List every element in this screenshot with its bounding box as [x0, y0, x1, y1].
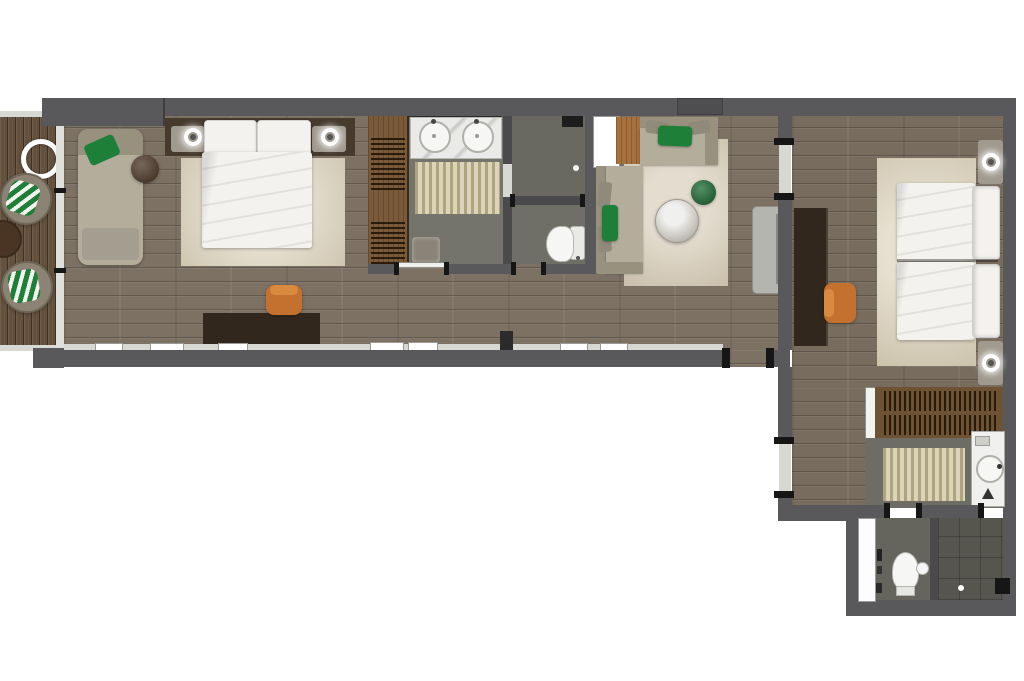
- door-jamb: [541, 262, 546, 275]
- sliding-door: [398, 262, 448, 268]
- corridor-wall-post: [500, 331, 513, 352]
- door-jamb: [394, 262, 399, 275]
- hand-basin: [916, 562, 929, 575]
- drain-icon: [475, 134, 479, 138]
- toilet-brush-icon: [877, 549, 882, 561]
- door-jamb: [722, 348, 730, 368]
- door-jamb: [884, 503, 890, 519]
- wardrobe-shelves: [371, 138, 405, 192]
- bathroom-inner-wall: [503, 197, 512, 264]
- shower2-floor: [938, 518, 1003, 600]
- shower-head-icon: [573, 165, 579, 171]
- wc2-partition-wall: [930, 518, 938, 600]
- wall-north: [42, 98, 1016, 116]
- shower-door-opening: [503, 164, 512, 197]
- soap-dish: [975, 436, 990, 446]
- bedside-lamp-icon: [184, 128, 202, 146]
- door-jamb: [766, 348, 774, 368]
- door-jamb: [510, 194, 515, 207]
- chaise-throw: [82, 228, 139, 260]
- bedroom2-chair-back: [824, 289, 834, 317]
- green-pouf: [691, 180, 716, 205]
- door-opening-living-bedroom2: [779, 145, 791, 193]
- faucet-icon: [474, 119, 479, 124]
- wall-south-main: [773, 350, 790, 367]
- wall-west-bedroom2: [778, 114, 792, 140]
- bedroom2-desk: [794, 208, 828, 346]
- door-jamb: [444, 262, 449, 275]
- bathroom-inner-wall: [503, 114, 512, 164]
- bathroom2-mat: [883, 448, 965, 501]
- bedroom-side-table: [131, 155, 159, 183]
- bin-icon: [877, 566, 882, 574]
- floor-drain: [995, 578, 1010, 594]
- sofa-green-cushion: [602, 205, 618, 241]
- entry-door-opening-unit1: [730, 350, 766, 367]
- door-jamb: [774, 193, 794, 200]
- living-wood-cabinet: [616, 117, 640, 164]
- door-jamb: [774, 437, 794, 444]
- wardrobe-side-panel: [407, 116, 409, 264]
- bathroom-south-wall: [543, 264, 597, 274]
- bathroom-south-wall: [446, 264, 513, 274]
- sofa-left-arm: [596, 262, 643, 274]
- master-desk-chair-back: [270, 285, 298, 295]
- bed-gap-shadow: [897, 259, 998, 262]
- door-jamb: [774, 491, 794, 498]
- lounge-chair-cushion: [6, 268, 41, 305]
- wall-south-bath2: [846, 600, 1016, 616]
- bed-pillow: [204, 120, 257, 156]
- service-shaft: [858, 518, 876, 602]
- wall-column: [677, 98, 723, 115]
- faucet-icon: [431, 119, 436, 124]
- faucet-icon: [997, 464, 1002, 469]
- bed-pillow: [257, 120, 311, 156]
- shower-wc-wall: [512, 196, 585, 205]
- balcony-window-wall: [56, 117, 64, 350]
- shower-symbol-icon: [982, 488, 994, 499]
- toilet-bowl: [546, 226, 574, 262]
- entry-door-opening-unit2: [779, 444, 791, 491]
- wardrobe-shelves: [371, 222, 405, 264]
- door-jamb: [916, 503, 922, 519]
- toilet-bowl: [892, 552, 919, 590]
- toilet-tank: [896, 586, 915, 596]
- floor-plan: [0, 0, 1024, 681]
- washbasin: [976, 455, 1004, 483]
- door-jamb: [511, 262, 516, 275]
- closet-hangers: [884, 391, 996, 411]
- flush-button-icon: [576, 256, 580, 260]
- shower-mat: [562, 116, 583, 127]
- bin-icon: [876, 583, 882, 593]
- bedside-lamp-icon: [982, 153, 1000, 171]
- wall-south-main: [42, 350, 723, 367]
- window-mullion: [54, 268, 66, 273]
- twin-bed-mattress: [897, 262, 975, 340]
- sofa-green-cushion: [658, 125, 693, 146]
- bath2-inner-wall: [918, 505, 982, 518]
- drain-icon: [432, 134, 436, 138]
- wall-east: [1003, 114, 1016, 616]
- shower-head-icon: [958, 585, 964, 591]
- bathroom-stool: [412, 237, 440, 263]
- door-jamb: [978, 503, 984, 519]
- coffee-table: [655, 199, 699, 243]
- master-bed-duvet: [202, 152, 312, 248]
- bedside-lamp-icon: [982, 354, 1000, 372]
- door-jamb: [774, 138, 794, 145]
- wall-stub-balcony: [33, 348, 64, 368]
- wall-west-bedroom2: [778, 199, 792, 350]
- wall-north-thick: [42, 98, 165, 126]
- window-mullion: [54, 188, 66, 193]
- entry-hall-floor: [792, 388, 868, 505]
- twin-bed-mattress: [897, 183, 975, 261]
- bath-mat: [415, 162, 500, 214]
- bedside-lamp-icon: [321, 128, 339, 146]
- twin-bed-pillow: [972, 264, 1000, 338]
- twin-bed-pillow: [972, 186, 1000, 260]
- wall-west-hall: [778, 367, 792, 439]
